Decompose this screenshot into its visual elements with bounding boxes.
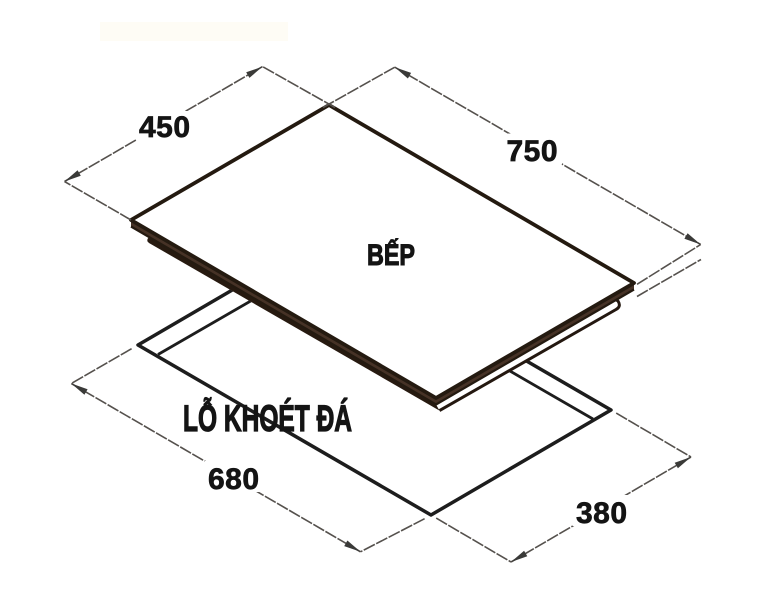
svg-text:LỖ KHOÉT ĐÁ: LỖ KHOÉT ĐÁ xyxy=(183,397,352,439)
svg-text:450: 450 xyxy=(139,111,190,144)
svg-text:750: 750 xyxy=(507,135,558,168)
svg-text:380: 380 xyxy=(576,497,627,530)
svg-text:BẾP: BẾP xyxy=(367,238,415,272)
svg-text:680: 680 xyxy=(208,463,259,496)
